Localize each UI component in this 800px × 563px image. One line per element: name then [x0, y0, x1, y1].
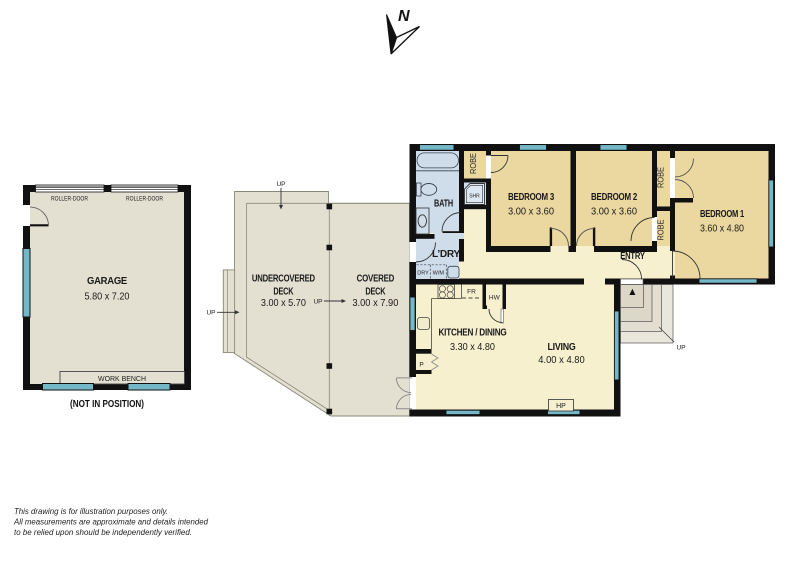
svg-text:UP: UP — [276, 181, 285, 188]
svg-text:UP: UP — [677, 345, 686, 352]
svg-text:UP: UP — [313, 298, 322, 305]
svg-text:BEDROOM 3: BEDROOM 3 — [508, 191, 554, 203]
svg-text:3.00 x 3.60: 3.00 x 3.60 — [508, 206, 554, 218]
svg-text:BEDROOM 2: BEDROOM 2 — [591, 191, 637, 203]
svg-text:P: P — [419, 362, 423, 369]
svg-text:4.00 x 4.80: 4.00 x 4.80 — [538, 354, 585, 366]
svg-text:COVERED: COVERED — [357, 273, 395, 285]
svg-text:to be relied upon should be in: to be relied upon should be independentl… — [14, 527, 192, 537]
svg-text:L’DRY: L’DRY — [432, 248, 460, 260]
svg-text:ROBE: ROBE — [657, 220, 666, 241]
svg-text:KITCHEN / DINING: KITCHEN / DINING — [439, 327, 507, 339]
svg-text:N: N — [398, 8, 410, 25]
svg-text:3.00 x 3.60: 3.00 x 3.60 — [591, 206, 637, 218]
svg-text:DECK: DECK — [273, 286, 293, 298]
svg-text:WORK BENCH: WORK BENCH — [98, 374, 146, 383]
svg-text:BATH: BATH — [434, 198, 453, 210]
svg-text:LIVING: LIVING — [548, 341, 576, 353]
svg-text:DRY: DRY — [417, 271, 429, 277]
svg-text:W/M: W/M — [433, 271, 445, 277]
svg-text:ROLLER-DOOR: ROLLER-DOOR — [51, 196, 88, 203]
svg-text:SHR: SHR — [469, 194, 480, 200]
svg-text:UP: UP — [206, 310, 215, 317]
svg-text:DECK: DECK — [365, 286, 385, 298]
svg-text:3.30 x 4.80: 3.30 x 4.80 — [450, 341, 495, 353]
svg-text:GARAGE: GARAGE — [87, 275, 127, 287]
svg-text:3.60 x 4.80: 3.60 x 4.80 — [700, 223, 744, 235]
svg-text:(NOT IN POSITION): (NOT IN POSITION) — [70, 398, 144, 410]
svg-text:FR: FR — [467, 289, 476, 296]
svg-text:BEDROOM 1: BEDROOM 1 — [700, 208, 744, 220]
svg-text:All measurements are approxima: All measurements are approximate and det… — [13, 517, 208, 527]
svg-text:HP: HP — [556, 403, 566, 410]
svg-text:ROBE: ROBE — [469, 153, 478, 174]
svg-text:5.80 x 7.20: 5.80 x 7.20 — [85, 291, 130, 303]
svg-text:3.00 x 5.70: 3.00 x 5.70 — [261, 297, 306, 309]
svg-text:This drawing is for illustrati: This drawing is for illustration purpose… — [14, 506, 168, 516]
svg-text:HW: HW — [489, 295, 501, 302]
svg-text:ROLLER-DOOR: ROLLER-DOOR — [126, 196, 163, 203]
svg-text:UNDERCOVERED: UNDERCOVERED — [252, 273, 316, 285]
svg-text:3.00 x 7.90: 3.00 x 7.90 — [352, 297, 398, 309]
svg-text:ROBE: ROBE — [657, 167, 666, 188]
svg-text:ENTRY: ENTRY — [620, 250, 645, 262]
